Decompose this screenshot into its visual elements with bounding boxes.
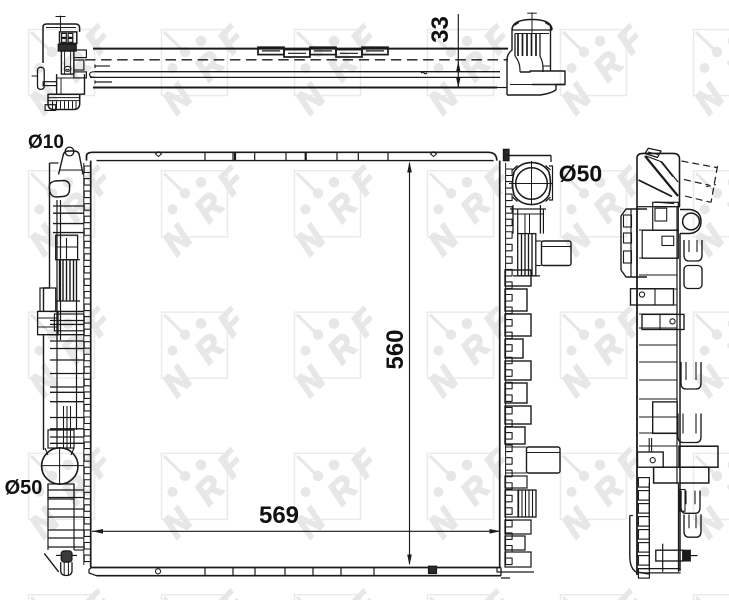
svg-text:Ø50: Ø50 xyxy=(559,161,602,187)
svg-text:569: 569 xyxy=(259,502,299,529)
svg-text:Ø50: Ø50 xyxy=(5,477,43,499)
svg-text:33: 33 xyxy=(427,16,454,43)
svg-text:Ø10: Ø10 xyxy=(28,132,64,153)
svg-text:560: 560 xyxy=(382,329,409,369)
